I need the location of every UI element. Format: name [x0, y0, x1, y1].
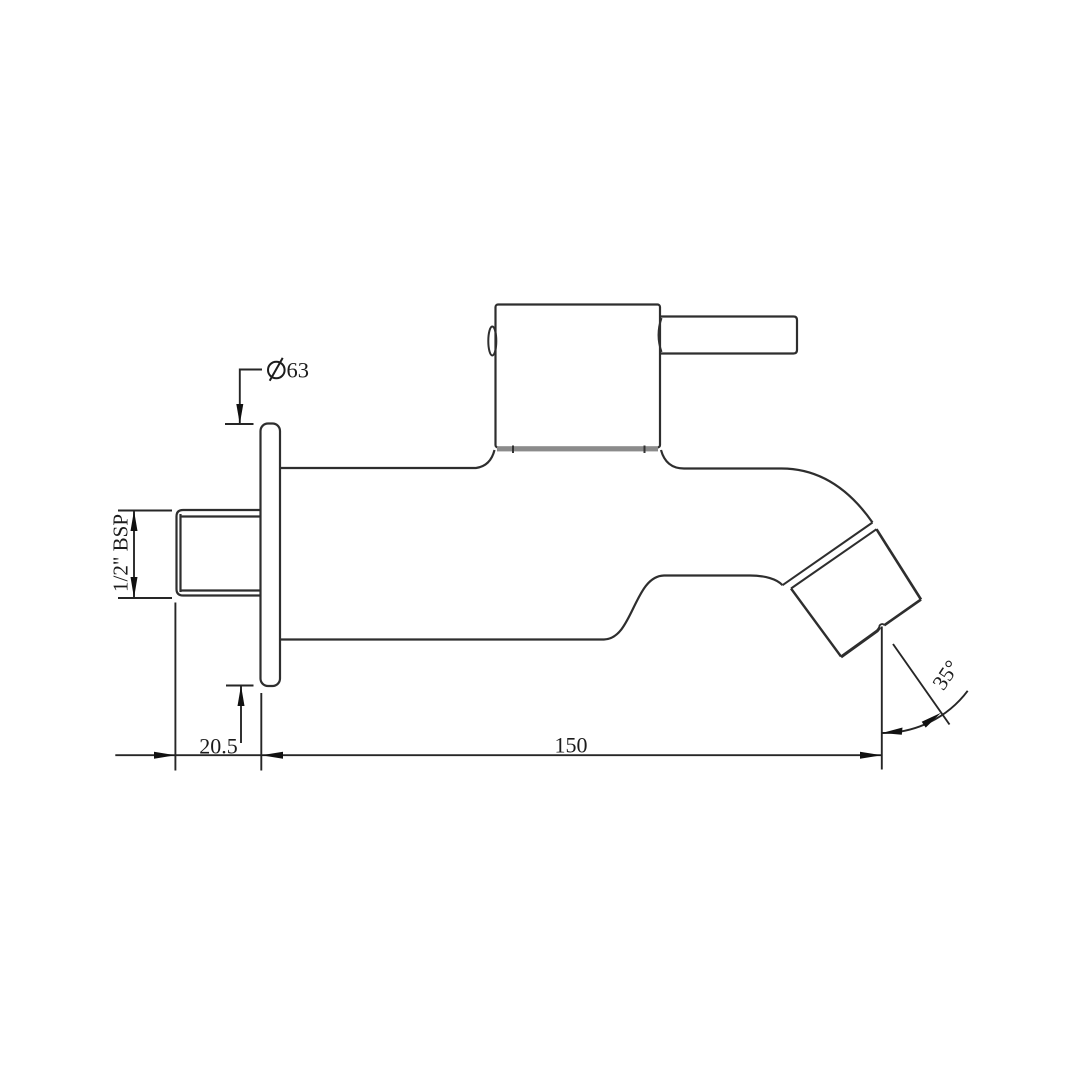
- svg-text:20.5: 20.5: [199, 734, 238, 759]
- svg-text:150: 150: [555, 733, 588, 758]
- svg-text:1/2" BSP: 1/2" BSP: [109, 514, 133, 592]
- svg-text:63: 63: [287, 358, 310, 383]
